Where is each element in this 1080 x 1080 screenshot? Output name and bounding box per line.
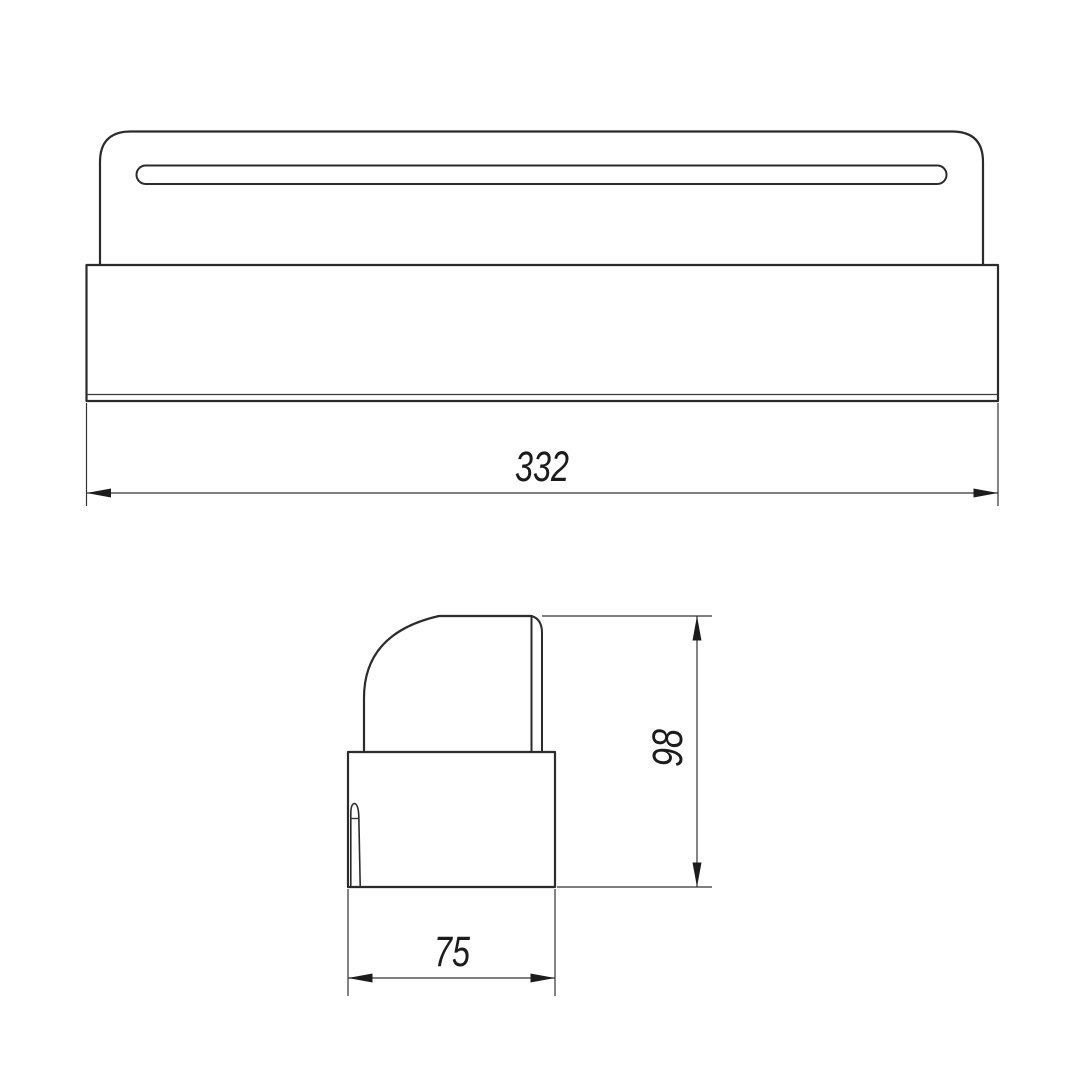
- arrowhead-left: [348, 974, 373, 983]
- front-cap-outline: [100, 132, 983, 266]
- side-base-block: [348, 752, 555, 887]
- side-cap-outer-edge: [532, 616, 543, 752]
- dimension-width-332: 332: [87, 403, 999, 506]
- front-base-plate: [87, 265, 999, 401]
- technical-drawing: 332 98: [0, 0, 1080, 1080]
- arrowhead-right: [974, 489, 999, 498]
- side-view: 98 75: [348, 616, 712, 996]
- side-tab-outline: [351, 804, 360, 886]
- front-slot: [137, 166, 947, 185]
- arrowhead-down: [693, 863, 702, 888]
- front-view: 332: [87, 132, 999, 507]
- dimension-width-label: 332: [515, 443, 569, 491]
- drawing-sheet: 332 98: [0, 0, 1080, 1080]
- dimension-depth-75: 75: [348, 889, 555, 996]
- side-cap-outline: [364, 616, 532, 752]
- arrowhead-up: [693, 616, 702, 641]
- arrowhead-right: [531, 974, 556, 983]
- side-tab-detail: [351, 804, 360, 886]
- arrowhead-left: [87, 489, 112, 498]
- dimension-height-98: 98: [542, 616, 712, 887]
- dimension-depth-label: 75: [434, 928, 471, 976]
- dimension-height-label: 98: [644, 729, 692, 767]
